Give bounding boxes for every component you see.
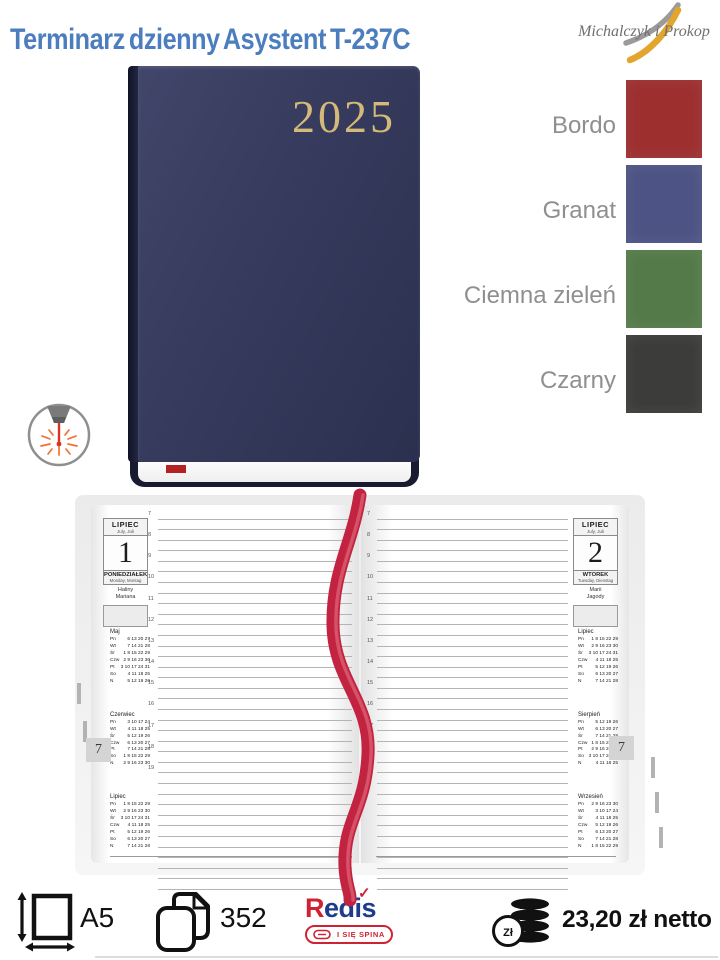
ruled-line <box>377 879 568 890</box>
hour-label: 15 <box>367 680 373 686</box>
ruled-line <box>377 583 568 594</box>
edge-index-mark <box>651 757 655 778</box>
page-bottom-rule <box>110 856 352 857</box>
hour-lines: 78910111213141516171819 <box>377 509 568 890</box>
mini-calendar-month: Lipiec <box>110 794 150 800</box>
hour-label: 12 <box>367 617 373 623</box>
edge-index-mark <box>77 683 81 704</box>
color-label: Czarny <box>540 353 616 395</box>
mini-calendar-dates: 5 12 19 26 <box>127 679 150 686</box>
redis-letter-r: R <box>305 893 324 923</box>
footer-divider <box>95 956 718 958</box>
ruled-line <box>377 604 568 615</box>
hour-label: 9 <box>367 553 370 559</box>
ruled-line <box>158 816 352 827</box>
mini-calendar-row: Śr1 8 15 22 29 <box>110 651 150 658</box>
ruled-line <box>158 837 352 848</box>
ruled-line: 19 <box>158 763 352 774</box>
mini-calendar-month: Lipiec <box>578 629 618 635</box>
mini-calendar-dates: 4 11 18 25 <box>128 672 150 679</box>
nameday: Mariana <box>103 594 148 601</box>
mini-calendar-row: Pn5 12 19 26 <box>578 720 618 727</box>
mini-calendar-column: MajPn6 13 20 27Wt7 14 21 28Śr1 8 15 22 2… <box>110 629 150 877</box>
pages-value: 352 <box>220 902 267 934</box>
ruled-line: 11 <box>158 594 352 605</box>
mini-calendar-dates: 2 9 16 23 30 <box>591 644 618 651</box>
hour-label: 11 <box>148 596 154 602</box>
ruled-line <box>158 668 352 679</box>
ruled-line: 10 <box>158 572 352 583</box>
day-number: 2 <box>573 536 618 571</box>
redis-wordmark: Redis ✓ <box>305 895 405 922</box>
mini-calendar-dates: 1 8 15 22 29 <box>591 637 618 644</box>
mini-calendar-day: N <box>110 679 121 686</box>
ruled-line: 13 <box>377 636 568 647</box>
mini-calendar-day: Pt <box>578 665 589 672</box>
diary-page-right: LIPIEC July, Juli 2 WTOREK Tuesday, Dien… <box>361 505 629 863</box>
ruled-line: 10 <box>377 572 568 583</box>
color-label: Bordo <box>552 98 616 140</box>
mini-calendar-day: N <box>110 844 121 851</box>
product-photo: 2025 <box>128 66 420 490</box>
mini-calendar-day: N <box>110 761 121 768</box>
mini-calendar-row: Pn3 10 17 24 <box>110 720 150 727</box>
ruled-line: 19 <box>377 763 568 774</box>
ruled-line <box>377 805 568 816</box>
mini-calendar-day: Wt <box>110 644 121 651</box>
notes-box <box>573 605 618 627</box>
ruled-line <box>377 752 568 763</box>
mini-calendar-dates: 6 13 20 27 <box>595 672 618 679</box>
mini-calendar-row: Śr3 10 17 24 31 <box>578 651 618 658</box>
ruled-line <box>377 541 568 552</box>
mini-calendar-row: Wt4 11 18 25 <box>110 727 150 734</box>
ruled-line <box>377 520 568 531</box>
ruled-line: 15 <box>377 678 568 689</box>
format-value: A5 <box>80 902 114 934</box>
ruled-line <box>158 562 352 573</box>
ruled-line <box>158 625 352 636</box>
ruled-line <box>377 562 568 573</box>
ruled-line: 7 <box>158 509 352 520</box>
laser-engraving-icon <box>26 402 92 468</box>
mini-calendar: MajPn6 13 20 27Wt7 14 21 28Śr1 8 15 22 2… <box>110 629 150 686</box>
date-block-right: LIPIEC July, Juli 2 WTOREK Tuesday, Dien… <box>573 518 618 627</box>
ruled-line: 16 <box>158 699 352 710</box>
ruled-line: 13 <box>158 636 352 647</box>
month-header: LIPIEC July, Juli <box>573 518 618 536</box>
ruled-line: 18 <box>158 742 352 753</box>
mini-calendar-dates: 5 12 19 26 <box>595 720 618 727</box>
mini-calendar-row: Pt5 12 19 26 <box>578 665 618 672</box>
mini-calendar-row: Wt7 14 21 28 <box>110 644 150 651</box>
weekday-translations: Monday, Montag <box>104 578 147 583</box>
ruled-line <box>377 625 568 636</box>
mini-calendar-dates: 3 10 17 24 31 <box>589 651 618 658</box>
mini-calendar-day: Wt <box>578 644 589 651</box>
ruled-line <box>158 752 352 763</box>
hour-label: 19 <box>367 765 373 771</box>
hour-label: 8 <box>367 532 370 538</box>
ruled-line: 9 <box>377 551 568 562</box>
ruled-line <box>158 541 352 552</box>
price-value: 23,20 zł netto <box>562 906 712 934</box>
ruled-line <box>377 869 568 880</box>
weekday-header: PONIEDZIAŁEK Monday, Montag <box>103 571 148 585</box>
hour-label: 12 <box>148 617 154 623</box>
ruled-line <box>158 689 352 700</box>
ruled-line <box>377 837 568 848</box>
ruled-line <box>158 784 352 795</box>
ruled-line <box>158 710 352 721</box>
mini-calendar-month: Czerwiec <box>110 712 150 718</box>
hour-label: 10 <box>367 574 373 580</box>
nameday: Marii <box>573 587 618 594</box>
mini-calendar-month: Maj <box>110 629 150 635</box>
brand-name: Michalczyk i Prokop <box>570 23 718 41</box>
ruled-line: 17 <box>377 721 568 732</box>
diary-spread: LIPIEC July, Juli 1 PONIEDZIAŁEK Monday,… <box>75 495 645 875</box>
redis-tagline-badge: I SIĘ SPINA <box>305 925 393 944</box>
mini-calendar-row: So6 13 20 27 <box>578 672 618 679</box>
mini-calendar-dates: 2 9 16 23 30 <box>123 658 150 665</box>
mini-calendar-dates: 3 10 17 24 31 <box>121 665 150 672</box>
mini-calendar-dates: 5 12 19 26 <box>127 734 150 741</box>
mini-calendar-row: N7 14 21 28 <box>110 844 150 851</box>
month-name: LIPIEC <box>574 520 617 529</box>
ruled-line: 18 <box>377 742 568 753</box>
ruled-line: 14 <box>158 657 352 668</box>
mini-calendar-row: N4 11 18 25 <box>578 761 618 768</box>
mini-calendar-day: Wt <box>110 727 121 734</box>
mini-calendar-day: Pn <box>110 637 121 644</box>
hour-label: 18 <box>367 744 373 750</box>
mini-calendar-dates: 6 13 20 27 <box>127 637 150 644</box>
mini-calendar-row: N5 12 19 26 <box>110 679 150 686</box>
mini-calendar-dates: 2 9 16 23 30 <box>123 761 150 768</box>
mini-calendar-day: Wt <box>578 727 589 734</box>
book-year: 2025 <box>292 90 396 143</box>
ruled-line <box>158 647 352 658</box>
ruled-line <box>158 805 352 816</box>
namedays: Marii Jagody <box>573 585 618 604</box>
hour-label: 11 <box>367 596 373 602</box>
ruled-line <box>158 773 352 784</box>
weekday-translations: Tuesday, Dienstag <box>574 578 617 583</box>
nameday: Jagody <box>573 594 618 601</box>
ruled-line <box>158 869 352 880</box>
mini-calendar-dates: 1 8 15 22 29 <box>123 651 150 658</box>
zloty-coins-icon: Zł <box>492 896 552 955</box>
hour-label: 10 <box>148 574 154 580</box>
mini-calendar-row: N1 8 15 22 29 <box>578 844 618 851</box>
color-option: Bordo <box>440 80 702 158</box>
ruled-line <box>158 826 352 837</box>
check-icon: ✓ <box>358 886 370 901</box>
mini-calendar-row: Wt2 9 16 23 30 <box>578 644 618 651</box>
mini-calendar-day: Pn <box>110 720 121 727</box>
ruled-line: 17 <box>158 721 352 732</box>
mini-calendar-dates: 4 11 18 25 <box>596 761 618 768</box>
page-count-icon <box>150 888 216 959</box>
mini-calendar: LipiecPn1 8 15 22 29Wt2 9 16 23 30Śr3 10… <box>110 794 150 851</box>
ruled-line <box>377 784 568 795</box>
notes-box <box>103 605 148 627</box>
paperclip-icon <box>313 929 333 940</box>
mini-calendar-day: Pn <box>578 720 589 727</box>
mini-calendar: LipiecPn1 8 15 22 29Wt2 9 16 23 30Śr3 10… <box>578 629 618 686</box>
ruled-line: 15 <box>158 678 352 689</box>
week-tab-left: 7 <box>86 738 111 762</box>
dimensions-icon <box>14 891 80 960</box>
svg-text:Zł: Zł <box>503 927 513 939</box>
color-options: BordoGranatCiemna zieleńCzarny <box>440 80 702 420</box>
ribbon-mark <box>166 465 186 473</box>
ruled-line: 8 <box>377 530 568 541</box>
ruled-line <box>158 520 352 531</box>
ruled-line: 11 <box>377 594 568 605</box>
mini-calendar-row: Pn1 8 15 22 29 <box>578 637 618 644</box>
week-tab-right: 7 <box>609 736 634 760</box>
month-name: LIPIEC <box>104 520 147 529</box>
book-cover: 2025 <box>138 66 420 462</box>
weekday-header: WTOREK Tuesday, Dienstag <box>573 571 618 585</box>
color-swatch <box>626 165 702 243</box>
mini-calendar-dates: 7 14 21 28 <box>127 644 150 651</box>
ruled-line <box>158 604 352 615</box>
ruled-line <box>158 858 352 869</box>
color-swatch <box>626 335 702 413</box>
hour-label: 7 <box>148 511 151 517</box>
mini-calendar-day: N <box>578 844 589 851</box>
hour-label: 7 <box>367 511 370 517</box>
color-option: Czarny <box>440 335 702 413</box>
color-swatch <box>626 250 702 328</box>
mini-calendar-day: Śr <box>578 734 589 741</box>
mini-calendar-dates: 7 14 21 28 <box>127 844 150 851</box>
hour-label: 17 <box>367 723 373 729</box>
mini-calendar-dates: 3 10 17 24 <box>127 720 150 727</box>
ruled-line <box>158 731 352 742</box>
hour-label: 16 <box>367 701 373 707</box>
mini-calendar-day: Śr <box>110 651 121 658</box>
ruled-line <box>377 731 568 742</box>
month-header: LIPIEC July, Juli <box>103 518 148 536</box>
ruled-line <box>377 647 568 658</box>
date-block-left: LIPIEC July, Juli 1 PONIEDZIAŁEK Monday,… <box>103 518 148 627</box>
hour-label: 8 <box>148 532 151 538</box>
mini-calendar-row: N2 9 16 23 30 <box>110 761 150 768</box>
namedays: Haliny Mariana <box>103 585 148 604</box>
hour-lines: 78910111213141516171819 <box>158 509 352 890</box>
mini-calendar-row: Pn6 13 20 27 <box>110 637 150 644</box>
ruled-line <box>377 826 568 837</box>
mini-calendar-dates: 5 12 19 26 <box>595 665 618 672</box>
mini-calendar-day: Pn <box>578 637 589 644</box>
mini-calendar-dates: 7 14 21 28 <box>595 679 618 686</box>
mini-calendar-month: Wrzesień <box>578 794 618 800</box>
ruled-line: 12 <box>158 615 352 626</box>
redis-logo: Redis ✓ I SIĘ SPINA <box>305 895 405 944</box>
mini-calendar-row: Czw4 11 18 25 <box>578 658 618 665</box>
page-bottom-rule <box>376 856 616 857</box>
edge-index-mark <box>655 792 659 813</box>
mini-calendar-day: Pt <box>110 665 121 672</box>
ruled-line <box>158 795 352 806</box>
mini-calendar-dates: 4 11 18 25 <box>596 658 618 665</box>
product-flyer: Terminarz dzienny Asystent T-237C Michal… <box>0 0 720 960</box>
mini-calendar-row: Wt6 13 20 27 <box>578 727 618 734</box>
mini-calendar-day: So <box>110 672 121 679</box>
color-label: Ciemna zieleń <box>464 268 616 310</box>
color-label: Granat <box>543 183 616 225</box>
mini-calendar-day: Czw <box>110 658 121 665</box>
ruled-line: 8 <box>158 530 352 541</box>
mini-calendar-dates: 1 8 15 22 29 <box>591 844 618 851</box>
ruled-line: 7 <box>377 509 568 520</box>
hour-label: 14 <box>367 659 373 665</box>
color-option: Ciemna zieleń <box>440 250 702 328</box>
color-swatch <box>626 80 702 158</box>
mini-calendar-day: Śr <box>578 651 589 658</box>
mini-calendar-row: Czw2 9 16 23 30 <box>110 658 150 665</box>
month-translations: July, Juli <box>574 529 617 534</box>
ruled-line: 12 <box>377 615 568 626</box>
hour-label: 13 <box>367 638 373 644</box>
mini-calendar: CzerwiecPn3 10 17 24Wt4 11 18 25Śr5 12 1… <box>110 712 150 769</box>
brand-logo: Michalczyk i Prokop <box>570 2 718 64</box>
mini-calendar-day: So <box>578 672 589 679</box>
day-number: 1 <box>103 536 148 571</box>
mini-calendar-row: N7 14 21 28 <box>578 679 618 686</box>
mini-calendar-dates: 6 13 20 27 <box>595 727 618 734</box>
hour-label: 9 <box>148 553 151 559</box>
mini-calendar-row: So4 11 18 25 <box>110 672 150 679</box>
ruled-line <box>377 689 568 700</box>
mini-calendar: WrzesieńPn2 9 16 23 30Wt3 10 17 24Śr4 11… <box>578 794 618 851</box>
ruled-line <box>158 583 352 594</box>
ruled-line <box>377 668 568 679</box>
ruled-line <box>377 795 568 806</box>
mini-calendar-month: Sierpień <box>578 712 618 718</box>
mini-calendar-day: Czw <box>578 658 589 665</box>
ruled-line <box>377 710 568 721</box>
ruled-line <box>377 816 568 827</box>
nameday: Haliny <box>103 587 148 594</box>
mini-calendar-day: Śr <box>110 734 121 741</box>
page-title: Terminarz dzienny Asystent T-237C <box>10 23 410 57</box>
diary-page-left: LIPIEC July, Juli 1 PONIEDZIAŁEK Monday,… <box>91 505 359 863</box>
edge-index-mark <box>659 827 663 848</box>
color-option: Granat <box>440 165 702 243</box>
mini-calendar-dates: 4 11 18 25 <box>128 727 150 734</box>
month-translations: July, Juli <box>104 529 147 534</box>
redis-tagline: I SIĘ SPINA <box>337 930 385 939</box>
mini-calendar-day: N <box>578 761 589 768</box>
ruled-line <box>377 773 568 784</box>
ruled-line: 14 <box>377 657 568 668</box>
mini-calendar-row: Śr5 12 19 26 <box>110 734 150 741</box>
ruled-line <box>377 858 568 869</box>
ruled-line: 9 <box>158 551 352 562</box>
ruled-line: 16 <box>377 699 568 710</box>
mini-calendar-row: Pt3 10 17 24 31 <box>110 665 150 672</box>
mini-calendar-day: N <box>578 679 589 686</box>
